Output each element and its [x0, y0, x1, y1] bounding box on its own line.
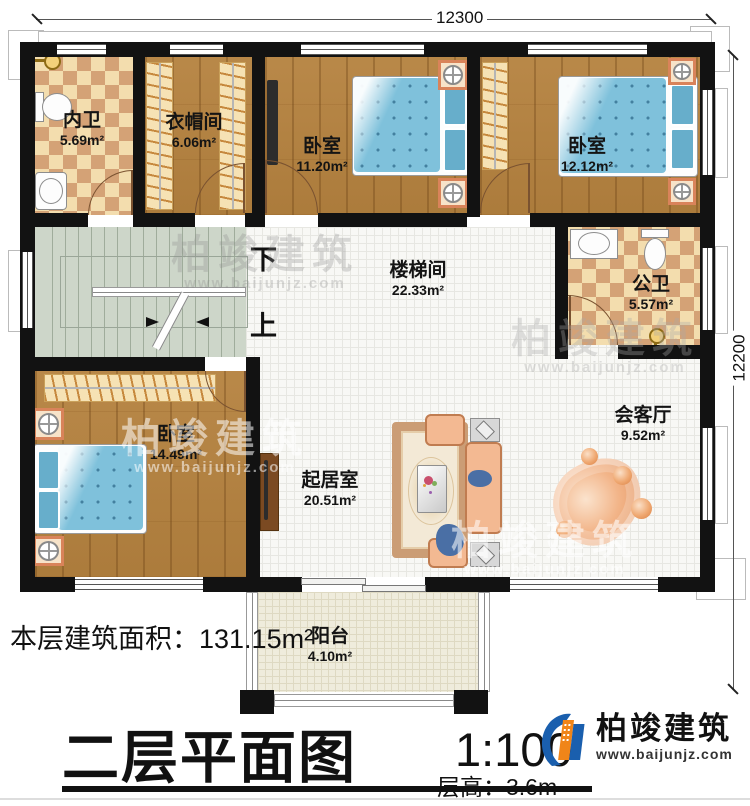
wall-cloak-bedroom	[252, 42, 265, 217]
bed-pillow	[670, 84, 695, 126]
wall-bedroomleft-north	[20, 357, 205, 371]
room-name: 楼梯间	[358, 260, 478, 282]
dimension-top-value: 12300	[432, 8, 487, 28]
wall-top-rooms-south	[318, 213, 467, 227]
wall-top-rooms-south	[20, 213, 88, 227]
room-area: 5.69m²	[22, 132, 142, 148]
wall-bedroomleft-north	[246, 357, 260, 371]
room-name: 会客厅	[583, 405, 703, 427]
dimension-line-top	[36, 19, 712, 20]
room-label-inner-bath: 内卫 5.69m²	[22, 110, 142, 148]
nightstand	[438, 60, 468, 90]
sliding-door-panel[interactable]	[362, 585, 426, 592]
floor-area-value: 131.15m²	[199, 624, 313, 654]
balcony-post	[454, 690, 488, 714]
wall-top-rooms-south	[133, 213, 195, 227]
floor-area-summary: 本层建筑面积：131.15m²	[10, 617, 313, 656]
wall-outer-bottom	[203, 577, 302, 592]
window-sill	[715, 426, 728, 524]
room-area: 11.20m²	[262, 158, 382, 174]
pouf	[613, 466, 632, 485]
balcony-railing-right	[478, 592, 490, 692]
room-label-stair-hall: 楼梯间 22.33m²	[358, 260, 478, 298]
sliding-door-panel[interactable]	[301, 578, 366, 585]
wall-publicbath-south	[555, 345, 568, 359]
floor-area-label: 本层建筑面积：	[10, 624, 199, 654]
bed-pillow	[37, 490, 60, 530]
window	[528, 44, 647, 55]
bed-pillow	[670, 128, 695, 170]
tv-panel	[264, 460, 268, 520]
nightstand	[668, 178, 696, 205]
balcony-post	[240, 690, 274, 714]
brand-logo-text: 柏竣建筑 www.baijunjz.com	[596, 712, 733, 762]
room-area: 12.12m²	[527, 158, 647, 174]
window-sill	[715, 246, 728, 334]
balcony-railing-bottom	[274, 694, 454, 707]
wall-top-rooms-south	[245, 213, 265, 227]
brand-name: 柏竣建筑	[596, 712, 733, 746]
room-area: 5.57m²	[591, 296, 711, 312]
window	[702, 90, 713, 175]
brand-logo: 柏竣建筑 www.baijunjz.com	[538, 712, 733, 779]
side-table	[470, 418, 500, 442]
pouf	[556, 521, 573, 538]
stairs-down-label: 下	[250, 238, 277, 277]
wall-bedroomleft-right	[246, 357, 260, 577]
wall-bedrooms-divider	[467, 42, 480, 217]
person-figure	[468, 470, 492, 487]
door-leaf	[243, 163, 245, 213]
room-label-bedroom-right: 卧室 12.12m²	[527, 136, 647, 174]
window	[75, 579, 203, 590]
window	[510, 579, 658, 590]
nightstand	[33, 536, 64, 566]
person-figure	[436, 524, 464, 556]
room-name: 起居室	[270, 470, 390, 492]
stair-arrow-right	[146, 317, 159, 327]
nightstand	[668, 58, 696, 85]
room-area: 9.52m²	[583, 427, 703, 443]
dimension-right-value: 12200	[730, 330, 750, 385]
window	[702, 428, 713, 520]
coffee-table	[417, 465, 447, 513]
sink-basin	[578, 232, 610, 255]
window	[22, 252, 33, 328]
room-name: 公卫	[591, 274, 711, 296]
room-label-bedroom-top: 卧室 11.20m²	[262, 136, 382, 174]
wall-outer-bottom	[20, 577, 75, 592]
sofa-long	[465, 442, 502, 534]
page-title: 二层平面图	[62, 712, 357, 794]
brand-website: www.baijunjz.com	[596, 746, 733, 762]
pouf	[631, 498, 652, 519]
room-area: 6.06m²	[138, 134, 250, 150]
nightstand	[438, 178, 468, 208]
wall-publicbath-south	[618, 345, 700, 359]
room-label-bedroom-left: 卧室 14.49m²	[116, 424, 236, 462]
wall-outer-bottom	[425, 577, 510, 592]
sink-basin	[39, 178, 63, 204]
room-name: 卧室	[116, 424, 236, 446]
side-table	[470, 542, 500, 567]
room-label-living-room: 起居室 20.51m²	[270, 470, 390, 508]
wall-top-rooms-south	[530, 213, 700, 227]
room-label-public-bath: 公卫 5.57m²	[591, 274, 711, 312]
window-sill	[715, 88, 728, 178]
toilet-bowl	[644, 238, 666, 270]
door-leaf	[569, 295, 571, 345]
floor-height-label: 层高：	[437, 774, 506, 800]
stair-handrail	[92, 287, 246, 297]
footer-divider	[0, 798, 750, 800]
room-area: 20.51m²	[270, 492, 390, 508]
armchair	[425, 414, 465, 446]
window	[57, 44, 106, 55]
wall-outer-bottom	[658, 577, 715, 592]
stairs-up-label: 上	[250, 304, 277, 343]
room-label-cloakroom: 衣帽间 6.06m²	[138, 112, 250, 150]
stair-arrow-left	[196, 317, 209, 327]
room-name: 衣帽间	[138, 112, 250, 134]
toilet-tank	[641, 229, 669, 238]
pouf	[581, 448, 598, 465]
window	[301, 44, 424, 55]
bed-pillow	[443, 128, 467, 172]
cloak-rack	[482, 62, 508, 170]
window	[170, 44, 223, 55]
bed-pillow	[37, 450, 60, 490]
room-area: 22.33m²	[358, 282, 478, 298]
nightstand	[33, 408, 64, 440]
brand-logo-icon	[538, 712, 590, 779]
room-name: 内卫	[22, 110, 142, 132]
room-area: 14.49m²	[116, 446, 236, 462]
room-name: 卧室	[262, 136, 382, 158]
room-name: 卧室	[527, 136, 647, 158]
room-label-reception: 会客厅 9.52m²	[583, 405, 703, 443]
wardrobe	[44, 374, 216, 402]
shower-head-icon	[649, 328, 665, 344]
wall-publicbath-left	[555, 227, 568, 345]
flower-decor	[424, 476, 433, 485]
